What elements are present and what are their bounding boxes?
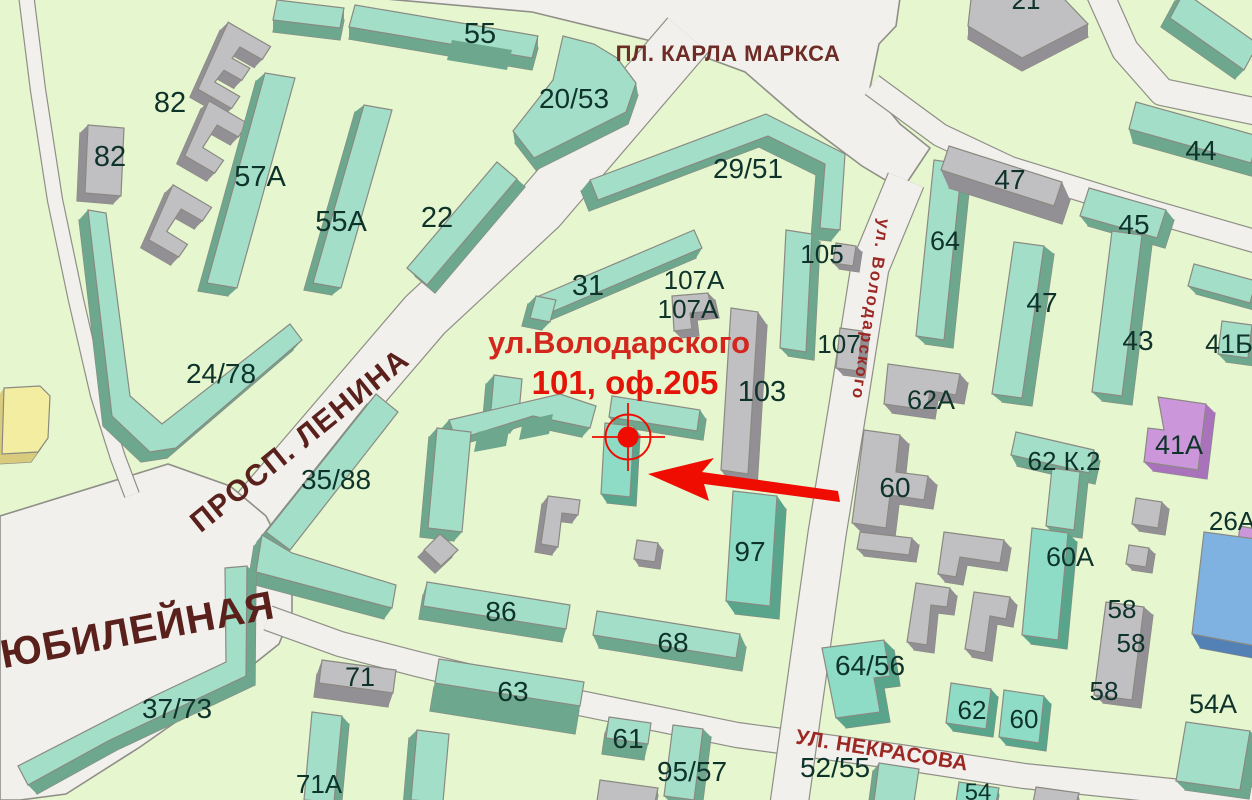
svg-text:29/51: 29/51 xyxy=(713,153,783,184)
svg-text:62 К.2: 62 К.2 xyxy=(1028,446,1101,476)
svg-text:105: 105 xyxy=(800,239,843,269)
svg-text:57А: 57А xyxy=(234,161,286,193)
svg-text:60: 60 xyxy=(879,472,910,503)
svg-text:44: 44 xyxy=(1185,135,1216,166)
svg-text:58: 58 xyxy=(1117,628,1146,658)
svg-text:54: 54 xyxy=(965,779,992,800)
svg-text:71: 71 xyxy=(345,662,375,692)
svg-text:62: 62 xyxy=(958,695,987,725)
svg-text:41Б: 41Б xyxy=(1205,329,1252,359)
svg-text:63: 63 xyxy=(497,676,528,707)
svg-text:47: 47 xyxy=(994,164,1025,195)
svg-text:47: 47 xyxy=(1026,287,1057,318)
svg-text:ПЛ. КАРЛА МАРКСА: ПЛ. КАРЛА МАРКСА xyxy=(616,41,841,66)
svg-text:62А: 62А xyxy=(907,385,955,415)
svg-text:22: 22 xyxy=(421,202,453,234)
svg-text:24/78: 24/78 xyxy=(186,358,256,389)
svg-text:60: 60 xyxy=(1010,704,1039,734)
svg-text:45: 45 xyxy=(1118,209,1149,240)
svg-text:31: 31 xyxy=(572,270,604,302)
svg-text:41А: 41А xyxy=(1155,430,1203,460)
svg-text:68: 68 xyxy=(657,627,688,658)
svg-text:37/73: 37/73 xyxy=(142,693,212,724)
svg-text:97: 97 xyxy=(734,536,765,567)
svg-text:82: 82 xyxy=(94,141,126,173)
svg-text:52/55: 52/55 xyxy=(800,752,870,783)
svg-text:55А: 55А xyxy=(315,206,367,238)
svg-text:71А: 71А xyxy=(296,769,343,799)
svg-text:101, оф.205: 101, оф.205 xyxy=(532,364,719,401)
svg-text:103: 103 xyxy=(738,376,786,408)
svg-text:61: 61 xyxy=(612,723,643,754)
svg-text:55: 55 xyxy=(464,18,496,50)
svg-text:58: 58 xyxy=(1090,676,1119,706)
svg-text:86: 86 xyxy=(485,596,516,627)
svg-text:ул.Володарского: ул.Володарского xyxy=(488,325,750,360)
svg-text:95/57: 95/57 xyxy=(657,756,727,787)
svg-text:64/56: 64/56 xyxy=(835,650,905,681)
svg-text:107: 107 xyxy=(817,329,860,359)
svg-text:64: 64 xyxy=(930,226,960,256)
svg-text:82: 82 xyxy=(154,87,186,119)
svg-text:107А: 107А xyxy=(658,294,719,324)
svg-text:35/88: 35/88 xyxy=(301,464,371,495)
svg-text:60А: 60А xyxy=(1046,542,1094,572)
svg-text:26А: 26А xyxy=(1209,506,1252,536)
svg-text:20/53: 20/53 xyxy=(539,83,609,114)
svg-text:107А: 107А xyxy=(664,265,725,295)
svg-text:21: 21 xyxy=(1012,0,1041,15)
svg-text:58: 58 xyxy=(1108,594,1137,624)
svg-text:54А: 54А xyxy=(1189,689,1237,719)
svg-text:43: 43 xyxy=(1122,325,1153,356)
